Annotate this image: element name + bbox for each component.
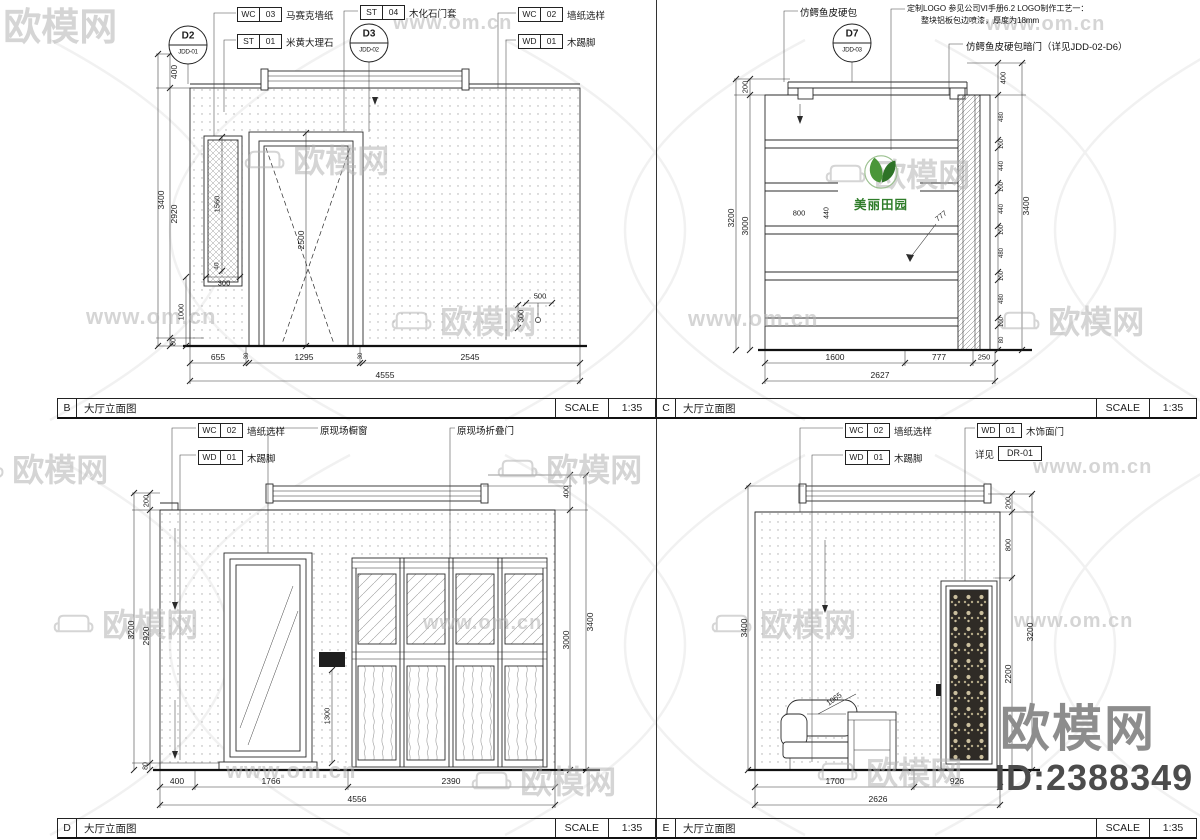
logo-text: 美丽田园 (843, 194, 919, 213)
scale-value-e: 1:35 (1149, 819, 1196, 837)
scale-label-d: SCALE (555, 819, 608, 837)
site-brand-text: 欧模网 (1000, 704, 1156, 754)
scale-value-c: 1:35 (1149, 399, 1196, 417)
cad-sheet: 欧模网www.om.cnwww.om.cn欧模网欧模网www.om.cn欧模网w… (0, 0, 1200, 840)
titlebar-e: E 大厅立面图 SCALE 1:35 (656, 818, 1197, 839)
brand-logo: 美丽田园 (843, 153, 919, 213)
view-label-e: E (657, 819, 676, 837)
view-title-d: 大厅立面图 (77, 821, 555, 836)
view-label-d: D (58, 819, 77, 837)
titlebar-c: C 大厅立面图 SCALE 1:35 (656, 398, 1197, 419)
logo-leaf-icon (862, 153, 900, 191)
view-label-c: C (657, 399, 676, 417)
scale-label-c: SCALE (1096, 399, 1149, 417)
scale-label-e: SCALE (1096, 819, 1149, 837)
view-title-e: 大厅立面图 (676, 821, 1096, 836)
scale-label-b: SCALE (555, 399, 608, 417)
scale-value-d: 1:35 (608, 819, 655, 837)
view-label-b: B (58, 399, 77, 417)
view-title-b: 大厅立面图 (77, 401, 555, 416)
view-title-c: 大厅立面图 (676, 401, 1096, 416)
image-id-text: ID:2388349 (995, 760, 1193, 796)
titlebar-d: D 大厅立面图 SCALE 1:35 (57, 818, 656, 839)
scale-value-b: 1:35 (608, 399, 655, 417)
titlebar-b: B 大厅立面图 SCALE 1:35 (57, 398, 656, 419)
